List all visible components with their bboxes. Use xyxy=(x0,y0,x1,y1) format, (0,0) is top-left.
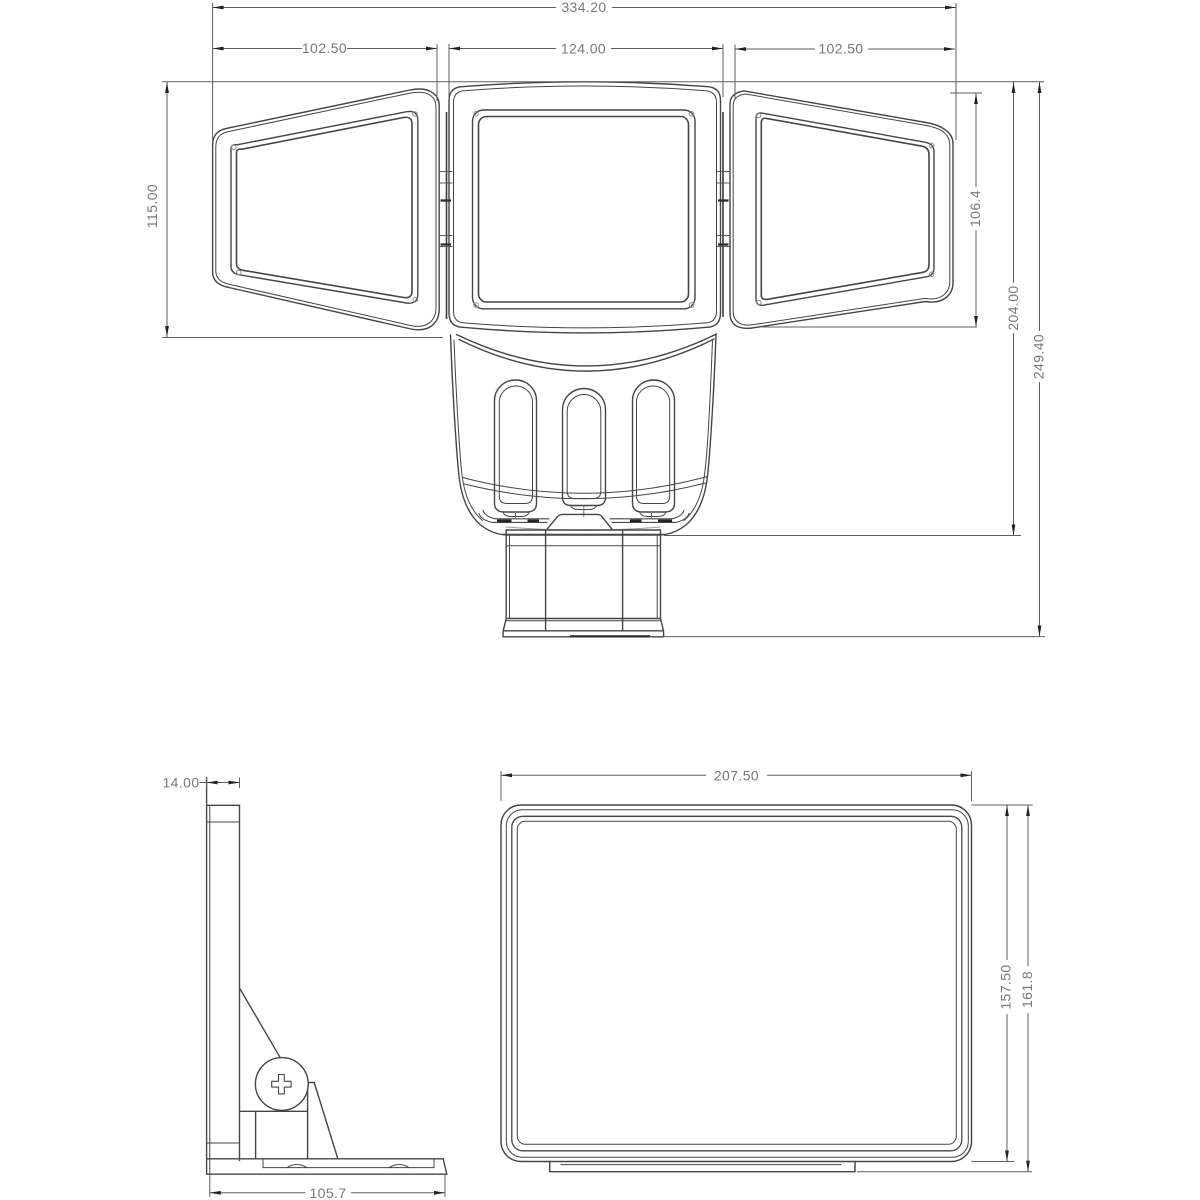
svg-text:102.50: 102.50 xyxy=(302,40,347,56)
svg-text:124.00: 124.00 xyxy=(561,41,606,57)
svg-text:249.40: 249.40 xyxy=(1031,334,1047,379)
svg-text:161.8: 161.8 xyxy=(1019,971,1035,1008)
svg-text:106.4: 106.4 xyxy=(967,190,983,227)
svg-text:105.7: 105.7 xyxy=(309,1185,346,1200)
svg-text:207.50: 207.50 xyxy=(714,767,759,783)
svg-text:204.00: 204.00 xyxy=(1005,285,1021,330)
svg-text:115.00: 115.00 xyxy=(144,184,160,228)
svg-text:102.50: 102.50 xyxy=(818,41,863,57)
svg-text:157.50: 157.50 xyxy=(998,964,1014,1009)
svg-text:14.00: 14.00 xyxy=(162,775,199,791)
svg-text:334.20: 334.20 xyxy=(561,0,606,15)
